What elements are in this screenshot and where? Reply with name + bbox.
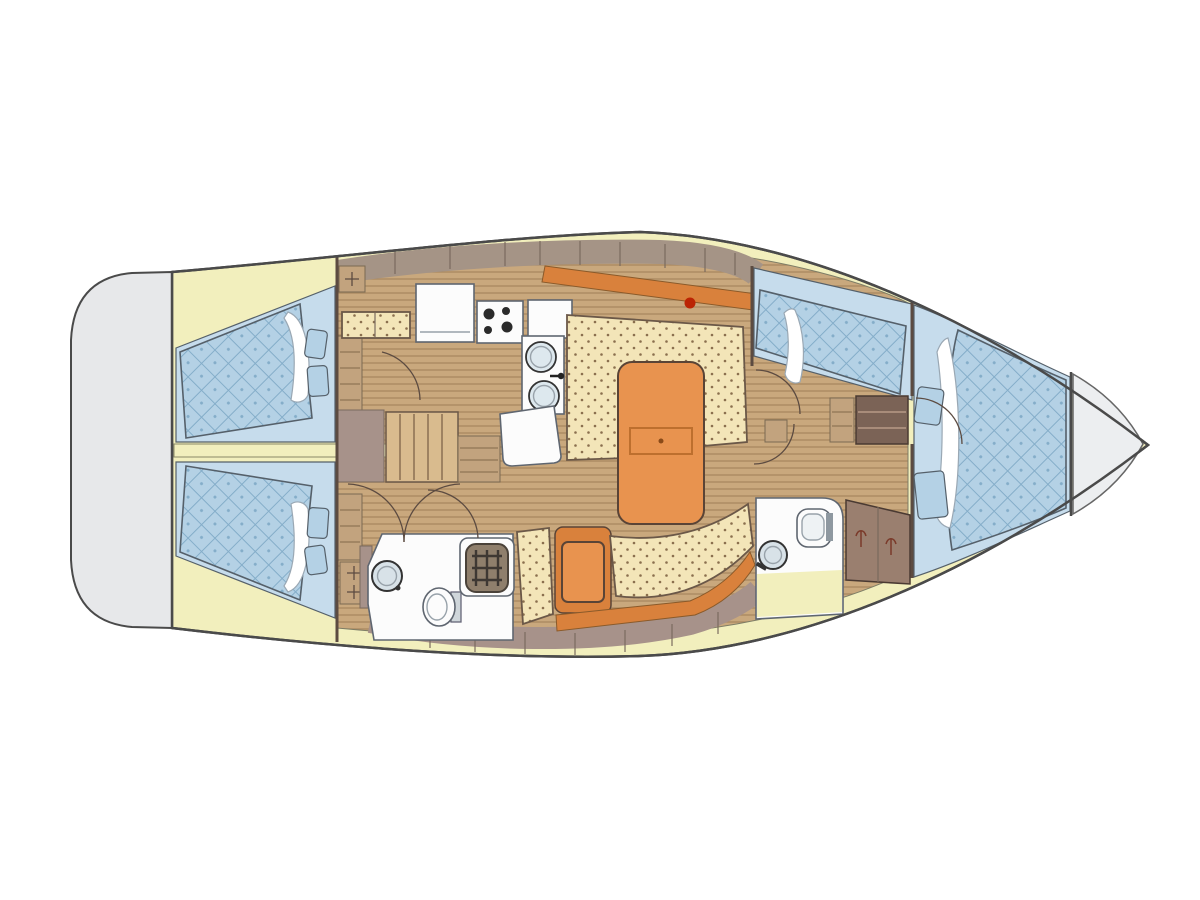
wardrobe — [846, 500, 910, 584]
aft-cabin-starboard-cushion — [304, 545, 328, 576]
galley-worktop — [528, 300, 572, 338]
swivel-seat-cushion — [562, 542, 604, 602]
forward-cabin-cushion — [914, 386, 945, 425]
aft-cabin-port-cushion — [307, 365, 329, 396]
aft-cabin-starboard-cushion — [307, 507, 329, 538]
refrigerator — [416, 284, 474, 342]
stern-swim-platform — [71, 272, 172, 628]
aft-head — [360, 534, 514, 640]
forward-head — [756, 498, 843, 619]
mid-cabin-step — [765, 420, 787, 442]
forward-head-floor — [757, 570, 842, 617]
galley-counter — [500, 406, 561, 466]
side-bench — [517, 528, 553, 624]
mast-step-dot — [685, 298, 696, 309]
companionway-landing — [458, 436, 500, 482]
faucet — [558, 373, 564, 379]
galley-ottoman — [342, 312, 410, 338]
aft-head-toilet — [423, 588, 461, 626]
companionway-steps — [386, 412, 458, 482]
table-hinge-dot — [659, 439, 664, 444]
forward-head-toilet — [797, 509, 833, 547]
aft-cabin-port-cushion — [304, 329, 328, 360]
stove — [477, 301, 523, 343]
shower-grate — [460, 538, 514, 596]
mid-cabin-storage — [856, 396, 908, 444]
yacht-floor-plan-canvas — [0, 0, 1200, 900]
aft-head-washbasin — [372, 561, 402, 591]
forward-cabin — [914, 305, 1070, 577]
companionway-wall-block — [338, 410, 384, 482]
mid-cabin-locker — [830, 398, 854, 442]
companionway-shelf-lower — [338, 494, 362, 560]
yacht-floor-plan — [0, 0, 1200, 900]
forward-cabin-cushion — [914, 471, 949, 520]
